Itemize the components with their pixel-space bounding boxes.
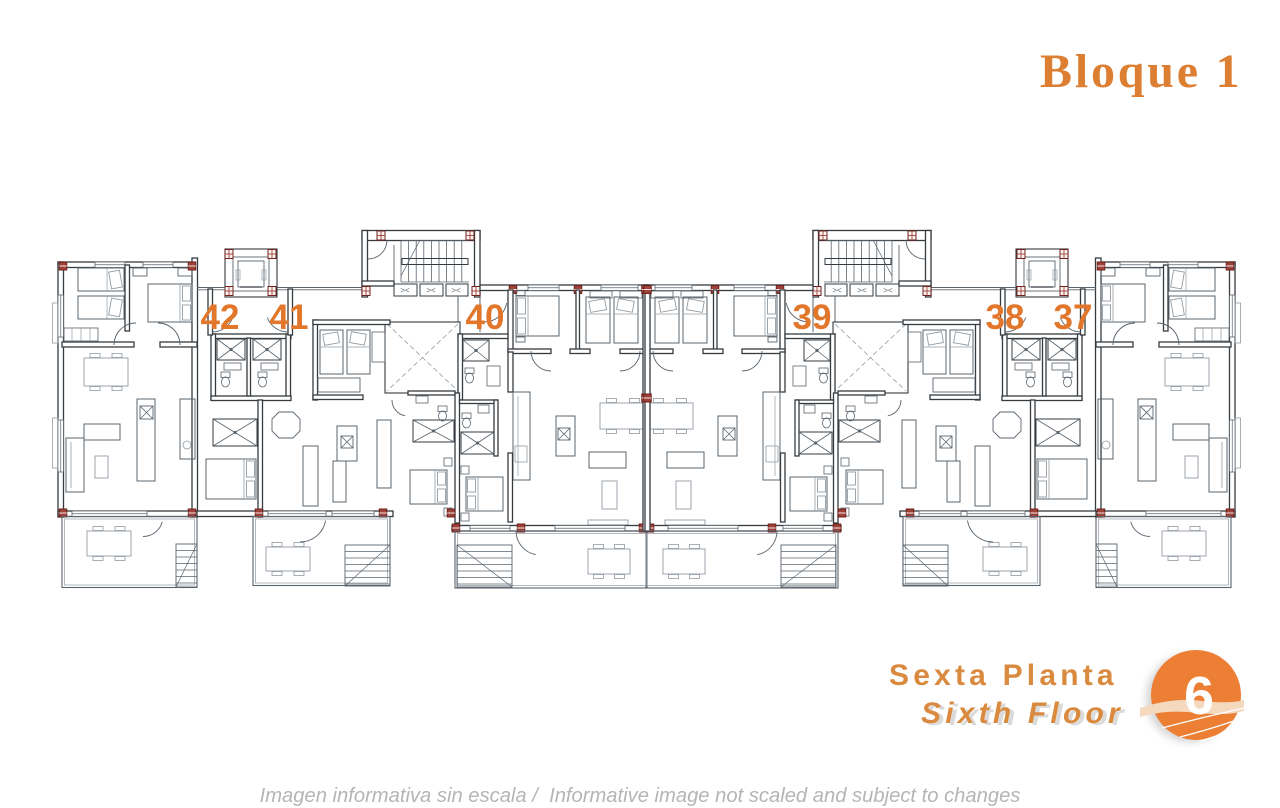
svg-text:><: >< <box>451 286 461 295</box>
svg-text:><: >< <box>400 286 410 295</box>
svg-text:><: >< <box>426 286 436 295</box>
svg-text:6: 6 <box>1184 666 1214 726</box>
svg-text:><: >< <box>883 286 893 295</box>
svg-text:><: >< <box>857 286 867 295</box>
svg-text:42: 42 <box>201 298 240 337</box>
svg-text:39: 39 <box>793 298 832 337</box>
svg-text:40: 40 <box>466 298 505 337</box>
svg-text:37: 37 <box>1054 298 1093 337</box>
svg-text:41: 41 <box>270 298 309 337</box>
svg-text:><: >< <box>832 286 842 295</box>
svg-text:38: 38 <box>986 298 1025 337</box>
